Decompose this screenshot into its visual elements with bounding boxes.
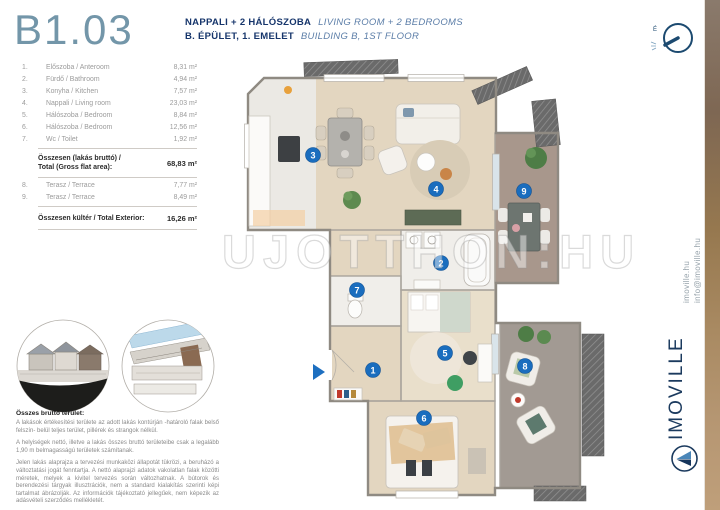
room-marker-4: 4	[429, 182, 444, 197]
bed-small	[408, 292, 470, 332]
exterior-total-value: 16,26 m²	[167, 214, 197, 223]
contact-info: imoville.hu info@imoville.hu	[681, 151, 703, 303]
exterior-area-table: 8.Terasz / Terrace7,77 m² 9.Terasz / Ter…	[16, 180, 197, 204]
flat-datasheet-page: B1.03 NAPPALI + 2 HÁLÓSZOBA LIVING ROOM …	[0, 0, 720, 510]
compass-icon: É	[645, 12, 701, 66]
table-row: 8.Terasz / Terrace7,77 m²	[16, 180, 197, 192]
row-name: Előszoba / Anteroom	[46, 64, 174, 71]
divider	[38, 177, 197, 178]
row-area: 4,94 m²	[174, 76, 197, 83]
website-link[interactable]: imoville.hu	[681, 151, 692, 303]
svg-text:2: 2	[438, 258, 443, 268]
disclaimer-heading: Összes bruttó terület:	[16, 410, 219, 417]
divider	[38, 229, 197, 230]
tv-cabinet	[405, 210, 461, 225]
row-num: 8.	[16, 182, 46, 189]
row-name: Terasz / Terrace	[46, 194, 174, 201]
brand-logo-icon	[669, 443, 701, 475]
svg-text:5: 5	[442, 348, 447, 358]
table-row: 9.Terasz / Terrace8,49 m²	[16, 192, 197, 204]
divider	[38, 206, 197, 207]
table-row: 6.Hálószoba / Bedroom12,56 m²	[16, 121, 197, 133]
row-area: 12,56 m²	[170, 124, 197, 131]
svg-text:9: 9	[521, 186, 526, 196]
divider	[38, 148, 197, 149]
exterior-total-label: Összesen kültér / Total Exterior:	[38, 214, 167, 223]
header-en-2: BUILDING B, 1ST FLOOR	[301, 31, 419, 42]
exterior-total: Összesen kültér / Total Exterior: 16,26 …	[38, 211, 197, 225]
location-diagrams	[10, 316, 220, 418]
page-edge-wood-strip	[704, 0, 720, 510]
floor-plan: 1 2 3 4 5 6 7 8 9	[228, 58, 664, 508]
row-name: Nappali / Living room	[46, 100, 170, 107]
gross-total-label-en: Total (Gross flat area):	[38, 163, 167, 172]
brand-wordmark: IMOVILLE	[666, 334, 688, 440]
table-row: 3.Konyha / Kitchen7,57 m²	[16, 86, 197, 98]
svg-text:7: 7	[354, 285, 359, 295]
row-area: 7,57 m²	[174, 88, 197, 95]
header-en-1: LIVING ROOM + 2 BEDROOMS	[318, 17, 463, 28]
header-line-1: NAPPALI + 2 HÁLÓSZOBA LIVING ROOM + 2 BE…	[185, 16, 463, 30]
desk-chair	[463, 351, 477, 365]
row-num: 2.	[16, 76, 46, 83]
disclaimer-paragraph: A lakások értékesítési területe az adott…	[16, 420, 219, 435]
bathroom-sink	[414, 280, 440, 289]
side-table	[440, 168, 452, 180]
header-line-2: B. ÉPÜLET, 1. EMELET BUILDING B, 1ST FLO…	[185, 30, 463, 44]
svg-text:3: 3	[310, 150, 315, 160]
row-area: 1,92 m²	[174, 136, 197, 143]
entrance-arrow-icon	[313, 364, 325, 380]
row-area: 8,84 m²	[174, 112, 197, 119]
svg-text:6: 6	[421, 413, 426, 423]
gross-total-value: 68,83 m²	[167, 159, 197, 168]
svg-text:1: 1	[370, 365, 375, 375]
table-row: 5.Hálószoba / Bedroom8,84 m²	[16, 110, 197, 122]
row-name: Hálószoba / Bedroom	[46, 112, 174, 119]
row-area: 8,49 m²	[174, 194, 197, 201]
kitchen-cabinets	[249, 116, 270, 226]
bedside-rug	[468, 448, 486, 474]
disclaimer-paragraph: A helyiségek nettó, illetve a lakás össz…	[16, 440, 219, 455]
sofa	[396, 104, 460, 144]
table-row: 7.Wc / Toilet1,92 m²	[16, 133, 197, 145]
room-marker-3: 3	[306, 148, 321, 163]
apartment-header: NAPPALI + 2 HÁLÓSZOBA LIVING ROOM + 2 BE…	[185, 16, 463, 44]
row-num: 1.	[16, 64, 46, 71]
desk	[478, 344, 492, 382]
site-plan-diagram	[122, 320, 214, 412]
plant	[344, 192, 353, 201]
row-num: 5.	[16, 112, 46, 119]
kitchen-rug	[253, 210, 305, 226]
svg-text:4: 4	[433, 184, 438, 194]
row-num: 9.	[16, 194, 46, 201]
room-area-table: 1.Előszoba / Anteroom8,31 m² 2.Fürdő / B…	[16, 62, 197, 145]
row-name: Wc / Toilet	[46, 136, 174, 143]
row-num: 7.	[16, 136, 46, 143]
pouf	[447, 375, 463, 391]
room-marker-9: 9	[517, 184, 532, 199]
row-area: 7,77 m²	[174, 182, 197, 189]
row-area: 23,03 m²	[170, 100, 197, 107]
table-row: 4.Nappali / Living room23,03 m²	[16, 98, 197, 110]
row-name: Hálószoba / Bedroom	[46, 124, 170, 131]
row-area: 8,31 m²	[174, 64, 197, 71]
bed-large	[386, 416, 458, 488]
gross-total-label-hu: Összesen (lakás bruttó) /	[38, 154, 167, 163]
email-link[interactable]: info@imoville.hu	[692, 151, 703, 303]
apartment-id: B1.03	[14, 6, 134, 54]
hall-shelf	[334, 388, 362, 400]
row-name: Terasz / Terrace	[46, 182, 174, 189]
table-row: 1.Előszoba / Anteroom8,31 m²	[16, 62, 197, 74]
row-num: 6.	[16, 124, 46, 131]
compass-north-label: É	[653, 26, 657, 33]
bathtub	[464, 234, 490, 286]
coffee-table	[417, 153, 435, 171]
disclaimer-paragraph: Jelen lakás alaprajza a tervezési munkak…	[16, 460, 219, 506]
building-section-diagram	[17, 320, 109, 412]
table-row: 2.Fürdő / Bathroom4,94 m²	[16, 74, 197, 86]
row-num: 3.	[16, 88, 46, 95]
kitchen-island	[278, 136, 300, 162]
svg-text:8: 8	[522, 361, 527, 371]
room-marker-1: 1	[366, 363, 381, 378]
pendant-lamp	[284, 86, 292, 94]
header-hu-1: NAPPALI + 2 HÁLÓSZOBA	[185, 17, 311, 28]
row-name: Fürdő / Bathroom	[46, 76, 174, 83]
room-marker-8: 8	[518, 359, 533, 374]
room-marker-2: 2	[434, 256, 449, 271]
room-marker-6: 6	[417, 411, 432, 426]
gross-total-label: Összesen (lakás bruttó) / Total (Gross f…	[38, 154, 167, 172]
disclaimer: Összes bruttó terület: A lakások értékes…	[16, 410, 219, 510]
row-num: 4.	[16, 100, 46, 107]
header-hu-2: B. ÉPÜLET, 1. EMELET	[185, 31, 294, 42]
row-name: Konyha / Kitchen	[46, 88, 174, 95]
gross-total: Összesen (lakás bruttó) / Total (Gross f…	[38, 152, 197, 174]
room-marker-5: 5	[438, 346, 453, 361]
room-marker-7: 7	[350, 283, 365, 298]
